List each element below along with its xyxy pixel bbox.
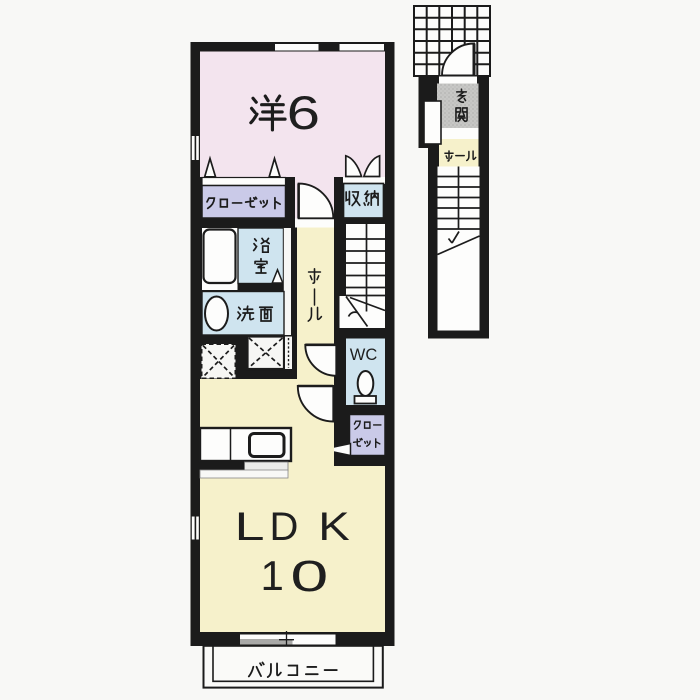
svg-text:D: D xyxy=(269,505,298,549)
svg-text:K: K xyxy=(318,504,349,549)
svg-text:6: 6 xyxy=(287,87,320,139)
svg-text:L: L xyxy=(234,505,264,550)
svg-text:1: 1 xyxy=(261,552,284,599)
svg-text:WC: WC xyxy=(350,346,378,364)
svg-text:0: 0 xyxy=(290,552,328,601)
